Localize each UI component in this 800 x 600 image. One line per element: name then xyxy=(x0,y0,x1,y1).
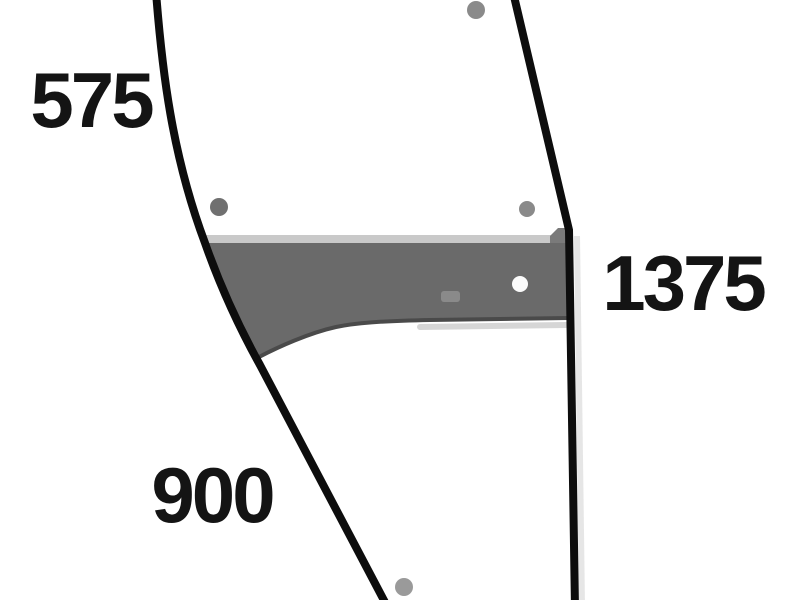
dimension-label-right: 1375 xyxy=(602,244,764,322)
hole-upper-right xyxy=(519,201,535,217)
mounting-band-top-edge xyxy=(203,235,567,244)
hole-band-white xyxy=(512,276,528,292)
dimension-label-left: 575 xyxy=(30,61,151,139)
diagram-canvas: 575 1375 900 xyxy=(0,0,800,600)
hole-upper-left xyxy=(210,198,228,216)
mounting-band xyxy=(206,243,568,357)
band-marking xyxy=(441,291,460,302)
hole-top xyxy=(467,1,485,19)
mounting-band-lower-highlight xyxy=(420,325,566,327)
dimension-label-bottom: 900 xyxy=(151,456,272,534)
hole-bottom xyxy=(395,578,413,596)
